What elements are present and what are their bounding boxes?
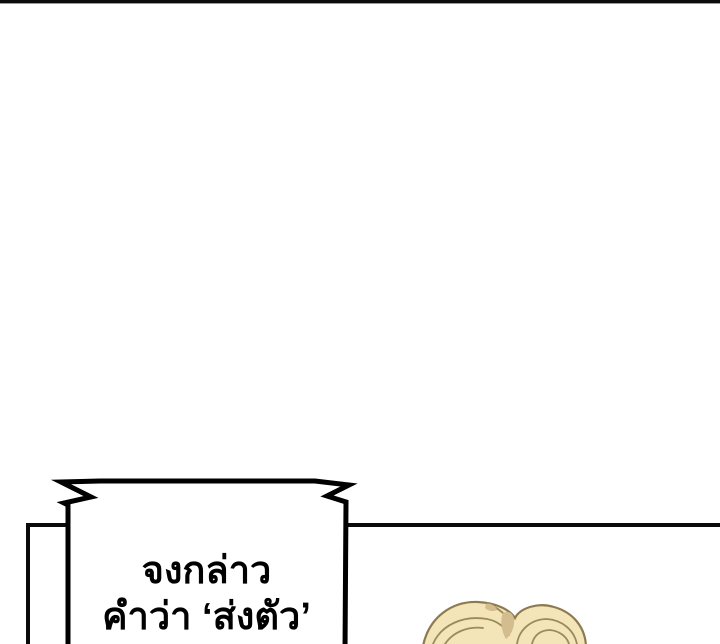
character-head-top — [423, 602, 586, 644]
webtoon-panel-canvas: จงกล่าว คำว่า ‘ส่งตัว’ — [0, 0, 720, 644]
speech-bubble-line-2: คำว่า ‘ส่งตัว’ — [68, 594, 345, 640]
speech-bubble-line-1: จงกล่าว — [68, 548, 345, 594]
speech-bubble-text: จงกล่าว คำว่า ‘ส่งตัว’ — [68, 548, 345, 640]
